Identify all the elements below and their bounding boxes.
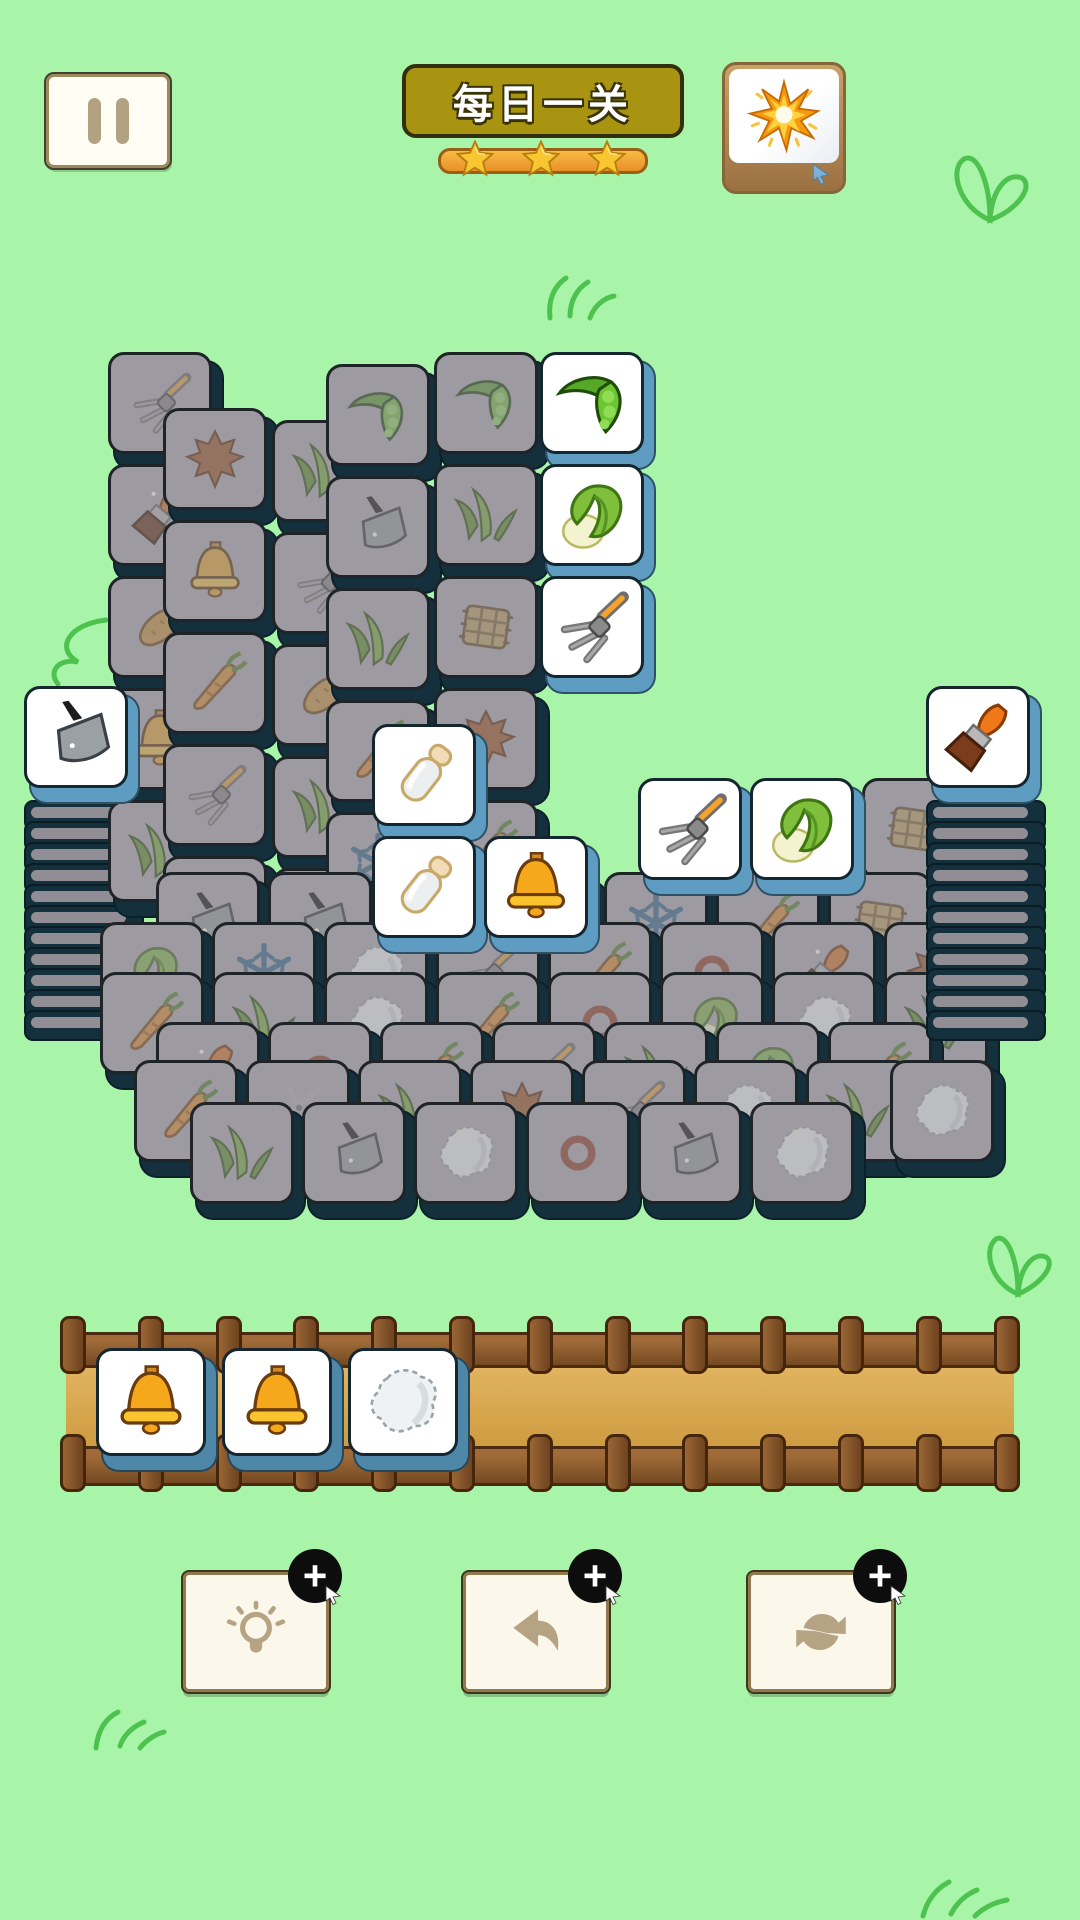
fence-post (994, 1316, 1020, 1374)
tile-pea[interactable] (326, 364, 438, 476)
cotton-icon (432, 1119, 500, 1187)
tile-cotton[interactable] (890, 1060, 1002, 1172)
tile-bell[interactable] (163, 520, 275, 632)
fence-post (682, 1434, 708, 1492)
tile-bell[interactable] (96, 1348, 214, 1466)
brush-icon (938, 697, 1018, 777)
grass-icon (208, 1119, 276, 1187)
shuffle-plus-badge[interactable]: + (853, 1549, 907, 1603)
tile-cleaver[interactable] (326, 476, 438, 588)
bulb-icon (223, 1599, 289, 1665)
tile-cleaver[interactable] (302, 1102, 414, 1214)
tile-bottle[interactable] (372, 836, 484, 948)
tile-cotton[interactable] (414, 1102, 526, 1214)
pile-edge (926, 1010, 1046, 1041)
fence-post (527, 1434, 553, 1492)
doodle-grass-bottom-left (88, 1698, 168, 1753)
bell-icon (235, 1360, 319, 1444)
carrot-icon (181, 649, 249, 717)
pea-icon (344, 381, 412, 449)
hint-button[interactable]: + (183, 1572, 329, 1692)
fence-post (760, 1434, 786, 1492)
fence-post (916, 1434, 942, 1492)
tile-cotton[interactable] (348, 1348, 466, 1466)
tile-brush[interactable] (926, 686, 1038, 798)
tile-cotton[interactable] (750, 1102, 862, 1214)
cleaver-icon (320, 1119, 388, 1187)
tile-ring[interactable] (526, 1102, 638, 1214)
bell-icon (496, 847, 576, 927)
pea-icon (552, 363, 632, 443)
tile-pea[interactable] (434, 352, 546, 464)
board (0, 0, 1080, 1280)
undo-button[interactable]: + (463, 1572, 609, 1692)
cursor-icon (889, 1585, 909, 1605)
fence-post (838, 1434, 864, 1492)
tile-bottle[interactable] (372, 724, 484, 836)
cabbage-icon (762, 789, 842, 869)
tile-cabbage[interactable] (750, 778, 862, 890)
tile-grass[interactable] (190, 1102, 302, 1214)
fence-post (60, 1434, 86, 1492)
cabbage-icon (552, 475, 632, 555)
tile-fork[interactable] (163, 744, 275, 856)
hint-plus-badge[interactable]: + (288, 1549, 342, 1603)
fence-post (60, 1316, 86, 1374)
pea-icon (452, 369, 520, 437)
ring-icon (544, 1119, 612, 1187)
fence-post (838, 1316, 864, 1374)
grass-icon (344, 605, 412, 673)
cotton-icon (768, 1119, 836, 1187)
cleaver-icon (656, 1119, 724, 1187)
tile-hay[interactable] (434, 576, 546, 688)
shuffle-button[interactable]: + (748, 1572, 894, 1692)
tile-bell[interactable] (222, 1348, 340, 1466)
bottle-icon (384, 735, 464, 815)
tile-pea[interactable] (540, 352, 652, 464)
bell-icon (109, 1360, 193, 1444)
fork-icon (650, 789, 730, 869)
tile-carrot[interactable] (163, 632, 275, 744)
cleaver-icon (36, 697, 116, 777)
tile-leaf[interactable] (163, 408, 275, 520)
tile-grass[interactable] (326, 588, 438, 700)
tray-fence (60, 1316, 1020, 1492)
undo-plus-badge[interactable]: + (568, 1549, 622, 1603)
fence-post (605, 1434, 631, 1492)
fence-post (682, 1316, 708, 1374)
cursor-icon (604, 1585, 624, 1605)
tile-fork[interactable] (638, 778, 750, 890)
fence-post (527, 1316, 553, 1374)
cleaver-icon (344, 493, 412, 561)
tile-cabbage[interactable] (540, 464, 652, 576)
bottle-icon (384, 847, 464, 927)
undo-icon (503, 1599, 569, 1665)
fence-post (916, 1316, 942, 1374)
cotton-icon (361, 1360, 445, 1444)
cursor-icon (324, 1585, 344, 1605)
grass-icon (452, 481, 520, 549)
bell-icon (181, 537, 249, 605)
tile-grass[interactable] (434, 464, 546, 576)
cotton-icon (908, 1077, 976, 1145)
tile-cleaver[interactable] (24, 686, 136, 798)
hay-icon (452, 593, 520, 661)
leaf-icon (181, 425, 249, 493)
game-screen: 每日一关 +++ (0, 0, 1080, 1920)
fork-icon (181, 761, 249, 829)
tile-cleaver[interactable] (638, 1102, 750, 1214)
tile-fork[interactable] (540, 576, 652, 688)
fence-post (994, 1434, 1020, 1492)
doodle-grass-bottom-right (915, 1872, 1020, 1920)
refresh-icon (788, 1599, 854, 1665)
fence-post (760, 1316, 786, 1374)
fence-post (605, 1316, 631, 1374)
tile-bell[interactable] (484, 836, 596, 948)
fork-icon (552, 587, 632, 667)
